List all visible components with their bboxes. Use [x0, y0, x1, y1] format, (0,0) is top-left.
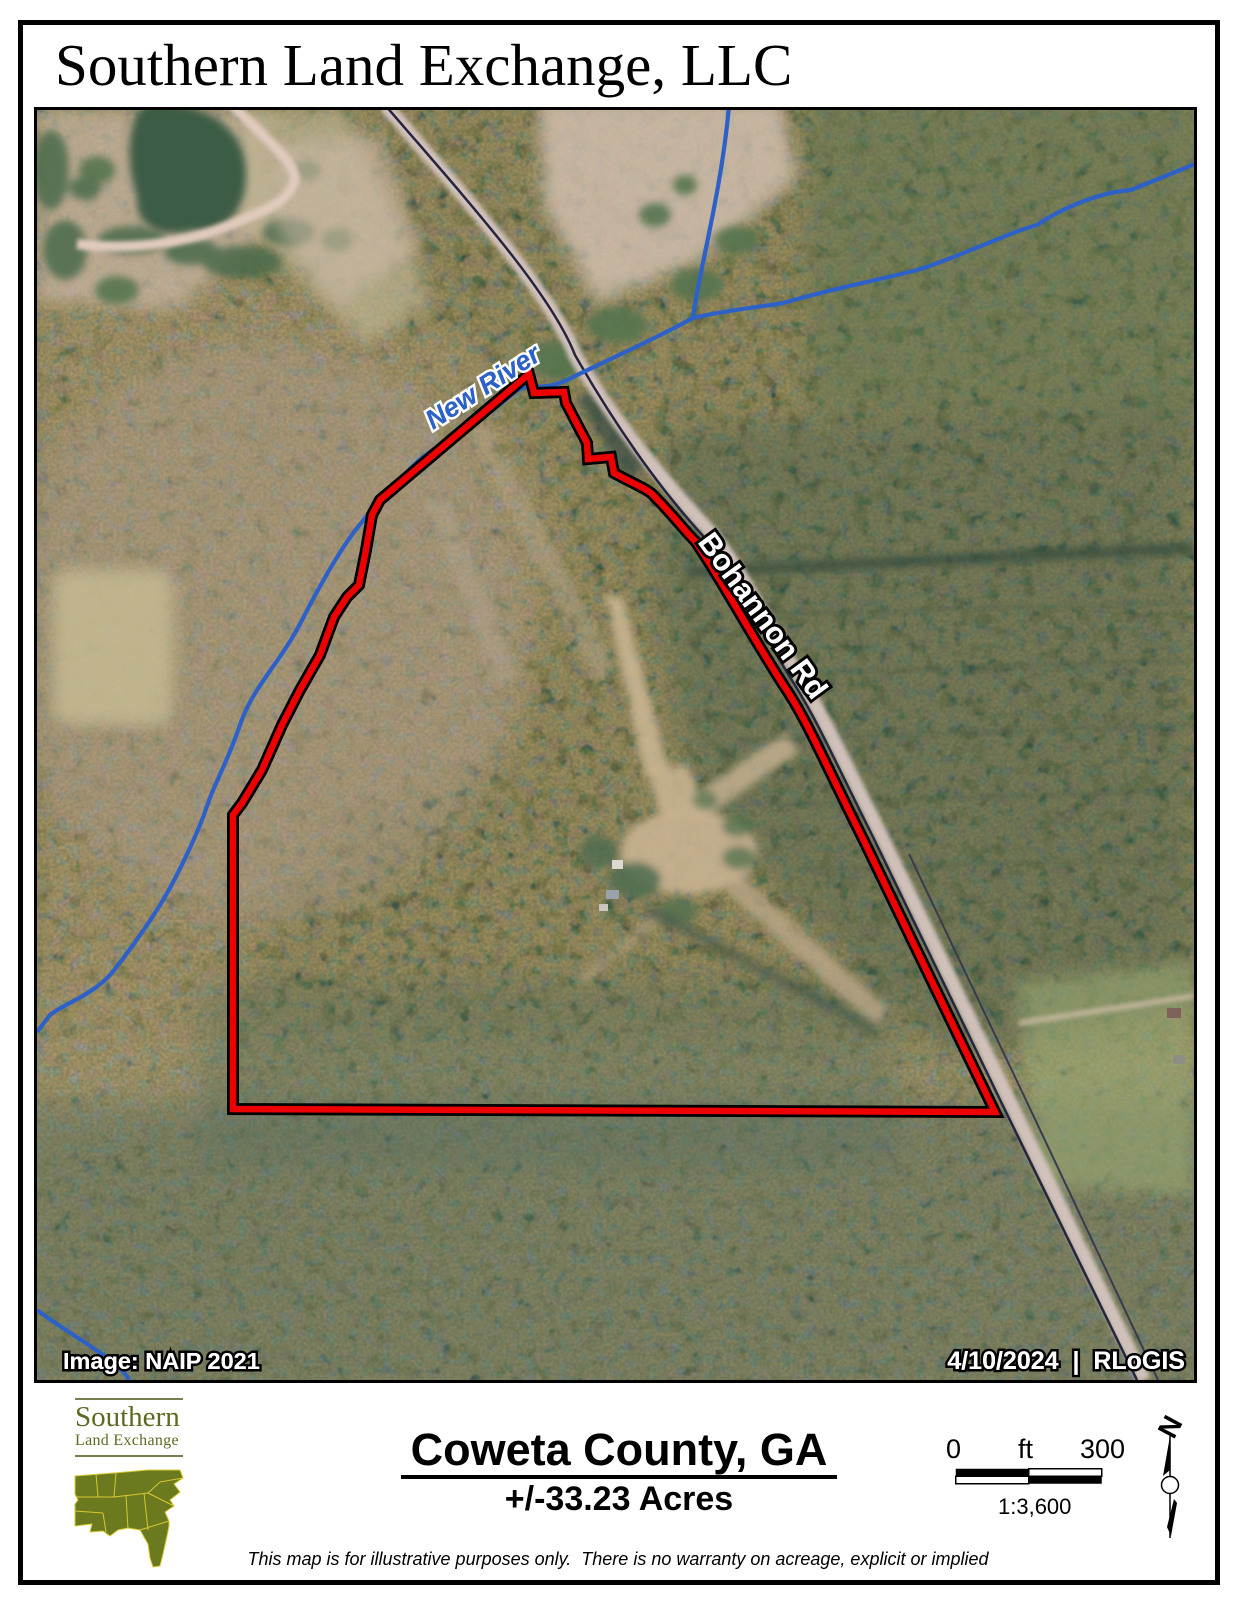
svg-text:4/10/2024 | RLoGIS: 4/10/2024 | RLoGIS — [947, 1347, 1185, 1375]
svg-text:Image: NAIP 2021: Image: NAIP 2021 — [63, 1348, 260, 1374]
